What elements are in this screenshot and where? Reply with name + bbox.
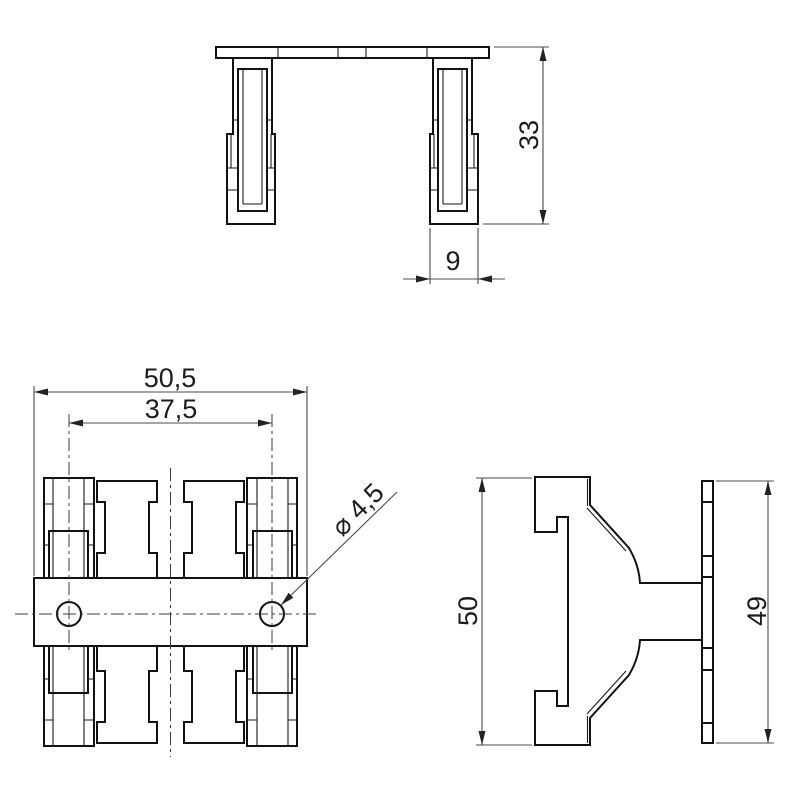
- dim-50-5-label: 50,5: [144, 363, 197, 393]
- dim-hole-spacing-37-5: 37,5: [69, 394, 272, 427]
- top-view: 33 9: [216, 47, 549, 284]
- left-leg: [227, 58, 275, 224]
- dim-foot-width-9: 9: [403, 228, 505, 284]
- dim-37-5-label: 37,5: [145, 394, 198, 424]
- t-profile-lower-left: [97, 646, 157, 743]
- front-view: 50,5 37,5 ⌀ 4,5: [15, 363, 397, 757]
- top-bar-segments: [278, 47, 427, 58]
- dim-body-height-50: 50: [453, 478, 532, 745]
- t-profile-lower-right: [184, 646, 244, 743]
- dim-height-33: 33: [483, 47, 549, 224]
- chamfer-lines: [587, 479, 626, 743]
- t-profile-upper-right: [184, 481, 244, 578]
- side-plate-segments: [702, 502, 713, 723]
- dim-50-label: 50: [453, 596, 483, 626]
- top-bar: [216, 47, 489, 58]
- hole-diameter-callout: ⌀ 4,5: [281, 477, 397, 605]
- side-plate: [702, 481, 713, 743]
- dim-49-label: 49: [742, 596, 772, 626]
- side-bracket: [535, 477, 702, 745]
- dim-9-label: 9: [445, 246, 460, 276]
- dim-plate-height-49: 49: [716, 481, 774, 743]
- clip-block-lower-left: [44, 646, 94, 746]
- technical-drawing-canvas: 33 9: [0, 0, 800, 800]
- dim-4-5-label: ⌀ 4,5: [325, 477, 390, 542]
- clip-block-lower-right: [247, 646, 297, 746]
- t-profile-upper-left: [97, 481, 157, 578]
- dim-33-label: 33: [514, 120, 544, 150]
- drawing-page: 33 9: [0, 0, 800, 800]
- side-view: 50 49: [453, 477, 774, 745]
- right-leg: [430, 58, 478, 224]
